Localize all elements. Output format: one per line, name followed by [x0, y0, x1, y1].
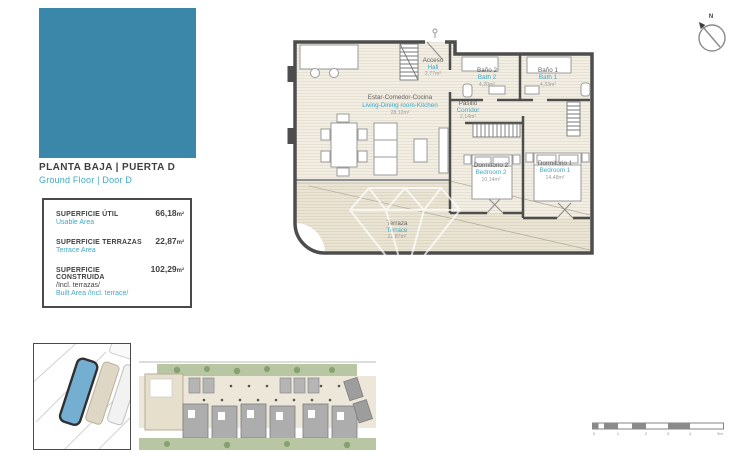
svg-text:5m: 5m: [717, 431, 723, 436]
svg-text:4: 4: [689, 431, 692, 436]
chair: [321, 151, 330, 162]
svg-text:Bath 2: Bath 2: [478, 74, 497, 81]
svg-text:4,33m²: 4,33m²: [540, 82, 556, 88]
usable-area-label-en: Usable Area: [56, 219, 184, 226]
room-label: Dormitorio 1: [538, 160, 573, 167]
svg-text:1: 1: [617, 431, 620, 436]
usable-area-row: SUPERFICIE ÚTIL 66,18m² Usable Area: [56, 208, 184, 226]
svg-text:14,48m²: 14,48m²: [545, 175, 564, 181]
page-title: PLANTA BAJA | PUERTA D: [39, 162, 269, 173]
north-label: N: [709, 14, 713, 20]
dining-table: [331, 123, 357, 167]
chair: [321, 129, 330, 140]
kitchen-stool: [311, 69, 320, 78]
stairs: [400, 44, 418, 80]
sofa: [374, 123, 397, 175]
sink-bath1: [525, 86, 539, 94]
svg-text:2,14m²: 2,14m²: [460, 114, 476, 120]
sideboard: [439, 128, 448, 173]
wardrobe-bedroom1: [567, 102, 580, 136]
room-label: Dormitorio 2: [474, 162, 509, 169]
apartment-floorplan: Estar-Comedor-Cocina Living-Dining room-…: [287, 28, 597, 320]
svg-text:28,12m²: 28,12m²: [390, 110, 409, 116]
toilet-bath2: [463, 84, 472, 97]
terrace-area-value: 22,87m²: [155, 236, 184, 246]
adjacent-building-outline: [109, 343, 131, 362]
svg-text:0: 0: [593, 431, 596, 436]
svg-text:Corridor: Corridor: [457, 107, 480, 114]
room-label: Baño 1: [538, 67, 558, 74]
landscape-strip-bottom: [139, 438, 376, 450]
scale-labels: 0 1 2 3 4 5m: [593, 431, 724, 436]
entrance-marker-icon: [433, 29, 437, 38]
scale-segments: [593, 423, 691, 429]
scale-bar: 0 1 2 3 4 5m: [592, 418, 732, 438]
built-area-label: SUPERFICIE CONSTRUIDA: [56, 267, 151, 281]
north-compass-icon: N: [690, 10, 734, 58]
svg-text:Bedroom 2: Bedroom 2: [476, 169, 507, 176]
landscape-strip-top: [157, 364, 357, 377]
svg-text:2,77m²: 2,77m²: [425, 71, 441, 77]
large-building-roof: [150, 379, 172, 397]
brand-color-block: [39, 8, 196, 158]
nightstand: [526, 153, 533, 162]
svg-text:Hall: Hall: [428, 64, 439, 71]
room-label: Estar-Comedor-Cocina: [368, 94, 433, 101]
terrace-area-row: SUPERFICIE TERRAZAS 22,87m² Terrace Area: [56, 236, 184, 254]
toilet-bath1: [581, 83, 590, 96]
wall-pilaster: [288, 66, 295, 82]
terrace-area-label-en: Terrace Area: [56, 247, 184, 254]
title-block: PLANTA BAJA | PUERTA D Ground Floor | Do…: [39, 162, 269, 185]
chair: [358, 151, 367, 162]
svg-text:3: 3: [667, 431, 670, 436]
site-plan: [137, 348, 378, 452]
chair: [358, 129, 367, 140]
floorplan-sheet: PLANTA BAJA | PUERTA D Ground Floor | Do…: [0, 0, 756, 456]
svg-text:Living-Dining room-Kitchen: Living-Dining room-Kitchen: [362, 102, 438, 109]
built-area-label-extra: /Incl. terrazas/: [56, 282, 184, 289]
nightstand: [513, 155, 520, 164]
chair: [337, 168, 349, 176]
svg-text:Bath 1: Bath 1: [539, 74, 558, 81]
svg-text:Terrace: Terrace: [387, 227, 408, 234]
room-label: Acceso: [423, 57, 444, 64]
room-label: Baño 2: [477, 67, 497, 74]
terrace-area-label: SUPERFICIE TERRAZAS: [56, 239, 142, 246]
kitchen-counter: [300, 45, 358, 69]
page-subtitle: Ground Floor | Door D: [39, 175, 269, 185]
usable-area-value: 66,18m²: [155, 208, 184, 218]
wall-pilaster: [288, 128, 295, 144]
built-area-value: 102,29m²: [151, 264, 184, 274]
room-label: Pasillo: [459, 100, 478, 107]
svg-text:10,14m²: 10,14m²: [481, 177, 500, 183]
svg-text:22,87m²: 22,87m²: [387, 234, 406, 240]
svg-text:Bedroom 1: Bedroom 1: [540, 167, 571, 174]
wardrobe-bedroom2: [473, 124, 520, 137]
built-area-row: SUPERFICIE CONSTRUIDA 102,29m² /Incl. te…: [56, 264, 184, 297]
nightstand: [464, 155, 471, 164]
kitchen-stool: [330, 69, 339, 78]
surface-areas-box: SUPERFICIE ÚTIL 66,18m² Usable Area SUPE…: [42, 198, 192, 308]
armchair: [414, 139, 427, 162]
built-area-label-en: Built Area /Incl. terrace/: [56, 290, 184, 297]
building-location-map: [33, 343, 131, 450]
svg-text:2: 2: [645, 431, 648, 436]
chair: [337, 114, 349, 122]
nightstand: [582, 153, 589, 162]
svg-text:4,20m²: 4,20m²: [479, 82, 495, 88]
usable-area-label: SUPERFICIE ÚTIL: [56, 211, 119, 218]
